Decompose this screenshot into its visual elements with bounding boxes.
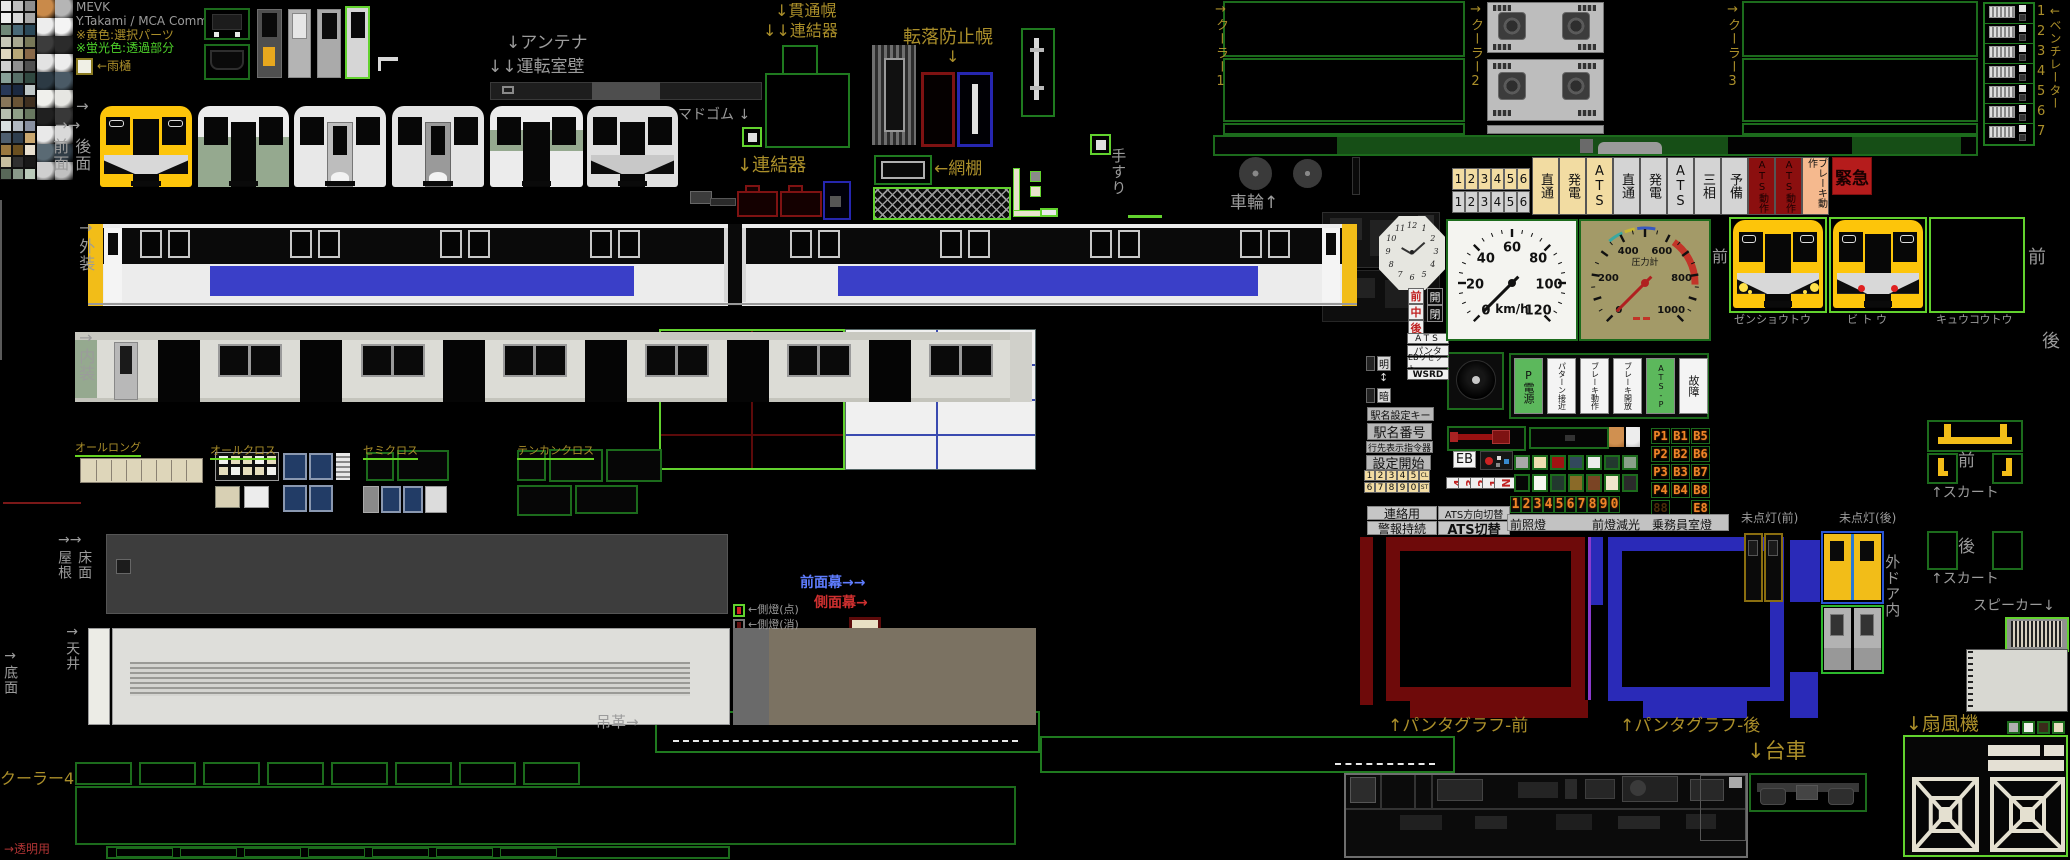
palette-swatch (12, 48, 24, 60)
texture-tile (55, 54, 73, 72)
brightness-arrow: ↕ (1379, 371, 1389, 387)
underbody-strip (733, 628, 769, 725)
label-antenna: ↓アンテナ (506, 34, 588, 52)
exterior-door-window (940, 230, 962, 258)
controller-led (1504, 459, 1509, 464)
bin-part (1350, 777, 1376, 803)
note-transparent-parts: ※蛍光色:透過部分 (76, 42, 212, 56)
face-door-window (333, 126, 348, 154)
ventilator-dot (2019, 105, 2026, 112)
interior-door-opening (869, 340, 911, 402)
ventilator-number: 2 (2037, 25, 2045, 39)
atsp-button-パターン接近[interactable]: パターン接近 (1547, 358, 1576, 414)
fan-swatch (2052, 721, 2065, 734)
train-front-white (294, 106, 386, 187)
keypad-key-5[interactable]: 5 (1408, 470, 1419, 481)
cab-button-EBリセット[interactable]: EBリセット (1407, 357, 1449, 368)
clock-numeral: 3 (1431, 247, 1441, 257)
palette-swatch (0, 48, 12, 60)
seg-panel-cell-P2: P2 (1651, 446, 1670, 462)
ac-unit-strip (1487, 125, 1604, 134)
cross-seat (381, 486, 401, 513)
svg-text:800: 800 (1671, 273, 1692, 284)
label-roof-arrows: →→ (58, 533, 81, 548)
ac-vent (1493, 5, 1511, 11)
interior-window-mullion (675, 346, 678, 375)
fan-frame-bar (1988, 760, 2064, 771)
indicator-button-予備[interactable]: 予備 (1721, 157, 1748, 215)
tick-panel-ticks (1968, 651, 1973, 710)
face-window-frame (1742, 235, 1756, 243)
palette-swatch (12, 36, 24, 48)
cab-button-WSRD[interactable]: WSRD (1407, 369, 1449, 380)
unlit-door-window (1768, 540, 1778, 556)
fan-swatch (2037, 721, 2050, 734)
green-box-row1 (459, 762, 516, 785)
bin-line (1414, 775, 1416, 809)
exterior-junction (728, 224, 742, 306)
palette-swatch (24, 96, 36, 108)
svg-text:400: 400 (1618, 246, 1639, 257)
seg-digit: 7 (1576, 496, 1587, 513)
door-open-close-cell[interactable]: 開 (1427, 288, 1443, 305)
interior-cab-door-window (120, 346, 132, 374)
horn-lever-head (1492, 430, 1510, 444)
paint-swatch (1622, 474, 1638, 492)
seg-panel-cell-P3: P3 (1651, 464, 1670, 480)
palette-swatch (12, 96, 24, 108)
exterior-door-window (440, 230, 462, 258)
seg-panel-cell-B5: B5 (1691, 428, 1710, 444)
palette-swatch (0, 36, 12, 48)
green-box-row2 (372, 848, 429, 857)
ac-panel (1223, 1, 1465, 57)
palette-swatch (24, 156, 36, 168)
rain-gutter-label: ←雨樋 (97, 60, 131, 74)
exterior-window-band (103, 228, 1342, 264)
light-label: 前照燈 (1510, 516, 1546, 533)
palette-swatch (0, 120, 12, 132)
exterior-end-door-window (1326, 233, 1336, 255)
outer-door-divider (1851, 534, 1854, 600)
ac-vent (1578, 63, 1596, 69)
exterior-door-window (590, 230, 612, 258)
palette-swatch (24, 24, 36, 36)
palette-swatch (0, 132, 12, 144)
ac-vent (1578, 5, 1596, 11)
svg-text:20: 20 (1466, 278, 1484, 293)
indicator-number-cream[interactable]: 1 (1452, 168, 1465, 190)
pantoroof-front-bar (1360, 537, 1373, 705)
label-cooler2: →クーラー2 (1468, 2, 1482, 90)
seg-panel-cell-P4: P4 (1651, 482, 1670, 498)
palette-swatch (0, 144, 12, 156)
interior-window-mullion (959, 346, 962, 375)
interior-window-mullion (248, 346, 251, 375)
clock-numeral: 12 (1407, 221, 1417, 231)
label-coupler-upper: ↓↓連結器 (763, 22, 838, 39)
svg-text:60: 60 (1503, 241, 1521, 256)
face-window (648, 117, 672, 145)
indicator-number-cream[interactable]: 6 (1517, 168, 1530, 190)
palette-swatch (12, 108, 24, 120)
skirt-front-nub (2000, 424, 2007, 438)
seg-panel-cell-B3: B3 (1671, 464, 1690, 480)
skirt-front-nub (1944, 424, 1951, 438)
face-step (325, 181, 354, 187)
ventilator-unit (1989, 66, 2015, 78)
label-gangway-hood: ↓貫通幌 (775, 2, 836, 19)
palette-swatch (0, 12, 12, 24)
label-tenkan-cross: テンカンクロス (517, 445, 594, 460)
indicator-button-ATS動作[interactable]: ATS動作 (1775, 157, 1802, 215)
red-guide-line (3, 502, 81, 504)
keypad-key-9[interactable]: 9 (1397, 482, 1408, 493)
label-fall-hood-arrow: ↓ (946, 48, 959, 65)
strap-dashes (673, 740, 1018, 742)
keypad-key-3[interactable]: 3 (1386, 470, 1397, 481)
atsp-button-ブレーキ動作[interactable]: ブレーキ動作 (1580, 358, 1609, 414)
indicator-number-gray[interactable]: 6 (1517, 191, 1530, 213)
cross-seat (403, 486, 423, 513)
fall-hood-red (921, 72, 955, 147)
skirt-rear-sub (1927, 531, 1958, 570)
label-semi-cross: セミクロス (363, 445, 418, 460)
ac-panel (1742, 123, 1978, 135)
indicator-number-cream[interactable]: 4 (1491, 168, 1504, 190)
horn-lever (1454, 434, 1494, 440)
label-window-rubber: マドゴム ↓ (678, 108, 750, 123)
ventilator-unit (1989, 6, 2015, 18)
net-rack-mesh (873, 187, 1011, 220)
exterior-blue-band (210, 266, 634, 296)
exterior-bottom-line (88, 303, 1357, 305)
ventilator-dot (2019, 114, 2026, 121)
palette-swatch (0, 60, 12, 72)
face-window (398, 117, 422, 145)
coupler-gray (690, 191, 712, 204)
indicator-button-ブレーキ動作[interactable]: ブレーキ動作 (1802, 157, 1829, 215)
strap-box (1040, 736, 1455, 773)
ventilator-dot (2019, 34, 2026, 41)
door-window (322, 13, 337, 39)
station-dest-label: 行先表示指令器 (1366, 441, 1433, 453)
inner-door-lower (1854, 648, 1881, 670)
indicator-number-gray[interactable]: 5 (1504, 191, 1517, 213)
semi-cross-part (425, 486, 447, 513)
palette-swatch (12, 144, 24, 156)
texture-tile (55, 72, 73, 90)
label-pantograph-rear: ↑パンタグラフ-後 (1620, 717, 1760, 735)
label-handrail: 手すり (1110, 148, 1126, 196)
label-front-face: 前面 (51, 138, 68, 172)
cross-seat (283, 485, 307, 512)
brightness-cell-light[interactable]: 明 (1377, 356, 1391, 371)
seg-digit: 0 (1609, 496, 1620, 513)
roof-panel (106, 534, 728, 614)
ac-panel (1742, 1, 1978, 57)
light-label: 前燈減光 (1592, 516, 1640, 533)
ac-fan (1498, 72, 1526, 100)
label-rear-face: 後面 (73, 138, 90, 172)
label-coupler-lower: ↓連結器 (737, 156, 806, 175)
inner-door-window (1860, 614, 1874, 636)
label-skirt-rear-ushiro: 後 (1958, 538, 1975, 556)
palette-swatch (12, 120, 24, 132)
green-box-row2 (436, 848, 493, 857)
green-box-row1 (75, 762, 132, 785)
ac-vent (1493, 110, 1511, 116)
face-window-frame (1900, 235, 1914, 243)
fan-frame-bar (2044, 745, 2064, 756)
indicator-button-直通[interactable]: 直通 (1532, 157, 1559, 215)
palette-swatch (24, 108, 36, 120)
seat-pad (244, 486, 269, 508)
ventilator-unit (1989, 26, 2015, 38)
sheet-title: MEVK (76, 1, 212, 15)
keypad-key-6[interactable]: 6 (1364, 482, 1375, 493)
ceiling-cap (88, 628, 110, 725)
indicator-number-gray[interactable]: 4 (1491, 191, 1504, 213)
label-all-cross: オールクロス (210, 445, 276, 460)
clock-numeral: 8 (1386, 260, 1396, 270)
keypad-key-0[interactable]: 0 (1408, 482, 1419, 493)
palette-swatch (24, 132, 36, 144)
atsp-button-ブレーキ開放[interactable]: ブレーキ開放 (1613, 358, 1642, 414)
clock-numeral: 4 (1428, 260, 1438, 270)
face-window-frame (1842, 235, 1856, 243)
texture-tile (37, 18, 55, 36)
face-step (1764, 301, 1793, 307)
label-pantograph-front: ↑パンタグラフ-前 (1388, 717, 1528, 735)
axle-sprite (1352, 157, 1360, 195)
exterior-door-window (790, 230, 812, 258)
green-box-row1 (395, 762, 452, 785)
ac-vent (1578, 110, 1596, 116)
label-front-lights: 前 (2028, 248, 2046, 267)
label-taillight: ビ ト ウ (1847, 314, 1887, 326)
atsp-button-P電源[interactable]: P電源 (1514, 358, 1543, 414)
ac-vent (1493, 63, 1511, 69)
bin-part (1518, 782, 1558, 798)
palette-swatch (0, 84, 12, 96)
label-expresslight: キュウコウトウ (1936, 314, 2013, 326)
pantoroof-rear-part (1790, 672, 1818, 718)
door-window (262, 13, 277, 37)
indicator-number-gray[interactable]: 3 (1478, 191, 1491, 213)
cab-button-ATS[interactable]: ATS (1407, 333, 1449, 344)
emergency-button[interactable]: 緊急 (1832, 157, 1872, 195)
seg-digit: 1 (1510, 496, 1521, 513)
label-bottom-face: →底面 (2, 648, 17, 695)
clock-center (1410, 250, 1414, 254)
indicator-button-発電[interactable]: 発電 (1559, 157, 1586, 215)
clock-numeral: 10 (1386, 234, 1396, 244)
cross-seat (309, 485, 333, 512)
green-box-row1 (139, 762, 196, 785)
label-skirt-front: ↑スカート (1931, 486, 1999, 501)
train-front-green (198, 106, 289, 187)
bin-part (1585, 779, 1615, 799)
eb-button[interactable]: EB (1453, 451, 1476, 468)
ventilator-dot (2019, 125, 2026, 132)
paint-swatch (1568, 455, 1584, 470)
bell-center (1472, 376, 1480, 384)
label-floor: 床面 (76, 550, 91, 580)
taillight-lamp (1891, 285, 1898, 292)
pantowell-dot (235, 32, 240, 37)
wheel-sprite (1293, 159, 1322, 188)
com-button-連絡用[interactable]: 連絡用 (1367, 506, 1437, 520)
indicator-number-gray[interactable]: 2 (1465, 191, 1478, 213)
texture-tile (37, 54, 55, 72)
exterior-door-window (1090, 230, 1112, 258)
seg-panel-cell-P1: P1 (1651, 428, 1670, 444)
face-door-window (431, 126, 446, 154)
label-fall-hood: 転落防止幌 (903, 28, 993, 47)
face-window (356, 117, 380, 145)
tenkan-box (575, 485, 638, 514)
exterior-junction-door (724, 228, 728, 302)
palette-swatch (12, 132, 24, 144)
indicator-button-三相[interactable]: 三相 (1694, 157, 1721, 215)
palette-swatch (0, 24, 12, 36)
ac-panel (1223, 58, 1465, 122)
side-curtain-line (846, 434, 1035, 436)
keypad-key-4[interactable]: 4 (1397, 470, 1408, 481)
strap-dashes (1335, 763, 1435, 765)
keypad-key-CL[interactable]: CL (1419, 470, 1430, 481)
brightness-cell-dark[interactable]: 暗 (1377, 388, 1391, 403)
seg-panel-cell-B6: B6 (1691, 446, 1710, 462)
atsp-button-故障[interactable]: 故障 (1679, 358, 1708, 414)
green-box-row1 (203, 762, 260, 785)
face-window-frame (1800, 235, 1814, 243)
interior-ceiling-strip (75, 332, 1032, 340)
taillight-face (1833, 220, 1923, 308)
shelf-bracket (378, 57, 398, 61)
interior-door-opening (585, 340, 627, 402)
pressure-gauge: 02004006008001000圧力計 (1579, 219, 1711, 341)
palette-swatch (24, 168, 36, 180)
label-front-curtain: 前面幕→→ (800, 576, 865, 591)
green-box-row2 (500, 848, 557, 857)
underbody-panel (769, 628, 1036, 725)
indicator-button-ATS[interactable]: ATS (1667, 157, 1694, 215)
keypad-key-2[interactable]: 2 (1375, 470, 1386, 481)
speedometer: 020406080100120km/h (1446, 219, 1578, 341)
indicator-button-ATS[interactable]: ATS (1586, 157, 1613, 215)
controller-led (1497, 456, 1501, 460)
coupler-red-bump (745, 185, 760, 193)
bin-part (1437, 779, 1483, 801)
seg-panel-cell-B8: B8 (1691, 482, 1710, 498)
face-door (231, 122, 256, 187)
keypad-key-1[interactable]: 1 (1364, 470, 1375, 481)
face-step (522, 181, 552, 187)
exterior-door-window (140, 230, 162, 258)
face-step (423, 181, 452, 187)
label-unlit-rear: 未点灯(後) (1839, 512, 1896, 525)
handrail-square (1030, 171, 1041, 182)
svg-text:圧力計: 圧力計 (1631, 256, 1658, 268)
bogie-center (1796, 785, 1818, 800)
indicator-number-gray[interactable]: 1 (1452, 191, 1465, 213)
sheet-author: Y.Takami / MCA Comm. (76, 15, 212, 29)
label-rear-lights: 後 (2042, 332, 2060, 351)
label-side-light-off: ←側燈(消) (748, 619, 799, 631)
pantowell-shape (212, 14, 242, 30)
window-rubber-core (748, 133, 757, 142)
paint-swatch (1514, 455, 1530, 470)
face-door (133, 119, 159, 187)
palette-swatch (24, 12, 36, 24)
paint-swatch (1532, 455, 1548, 470)
indicator-number-cream[interactable]: 5 (1504, 168, 1517, 190)
indicator-number-cream[interactable]: 2 (1465, 168, 1478, 190)
hood-striped-core (884, 58, 905, 132)
label-speaker: スピーカー↓ (1973, 599, 2055, 614)
skirt-front-box (1927, 420, 2023, 452)
label-exterior: →外装 (77, 218, 94, 272)
door-window-lit (263, 47, 275, 66)
face-step (229, 181, 258, 187)
paint-swatch (1550, 455, 1566, 470)
keypad-key-ST[interactable]: ST (1419, 482, 1430, 493)
label-cooler4: クーラー4 (0, 770, 74, 787)
seg-digit: 2 (1521, 496, 1532, 513)
green-box-row2 (116, 848, 173, 857)
paint-swatch (1568, 474, 1584, 492)
indicator-button-直通[interactable]: 直通 (1613, 157, 1640, 215)
paint-swatch (1586, 455, 1602, 470)
handrail-square (1030, 186, 1041, 197)
face-window-frame (109, 120, 124, 127)
door-position-cell[interactable]: 前 (1408, 288, 1424, 304)
bin-line (1380, 775, 1382, 809)
face-window (259, 117, 283, 145)
door-open-close-cell[interactable]: 閉 (1427, 305, 1443, 322)
indicator-button-発電[interactable]: 発電 (1640, 157, 1667, 215)
indicator-number-cream[interactable]: 3 (1478, 168, 1491, 190)
door-position-cell[interactable]: 中 (1408, 304, 1424, 320)
keypad-key-8[interactable]: 8 (1386, 482, 1397, 493)
outer-door-window (1830, 541, 1844, 561)
ventilator-grid-line (1985, 43, 2033, 44)
atsp-button-ATS-P[interactable]: ATS-P (1646, 358, 1675, 414)
station-key-label: 駅名設定キー (1367, 407, 1434, 421)
palette-swatch (24, 48, 36, 60)
seg-digit: 3 (1532, 496, 1543, 513)
net-rack-frame (881, 161, 925, 179)
label-ventilator: ←ベンチレーター (2048, 4, 2061, 110)
interior-door-opening (158, 340, 200, 402)
seg-digit: 5 (1554, 496, 1565, 513)
com-button-警報持続[interactable]: 警報持続 (1367, 521, 1437, 535)
keypad-key-7[interactable]: 7 (1375, 482, 1386, 493)
texture-chip-white (1626, 427, 1640, 447)
texture-tile (55, 18, 73, 36)
clock-numeral: 6 (1407, 273, 1417, 283)
antenna-sprite (502, 86, 514, 94)
com-button-ATS切替[interactable]: ATS切替 (1438, 521, 1510, 535)
exterior-end-door-window (108, 233, 118, 255)
svg-text:100: 100 (1535, 278, 1562, 293)
exterior-door-window (318, 230, 340, 258)
indicator-button-ATS動作[interactable]: ATS動作 (1748, 157, 1775, 215)
striped-part (336, 453, 350, 480)
fan-swatch (2007, 721, 2020, 734)
